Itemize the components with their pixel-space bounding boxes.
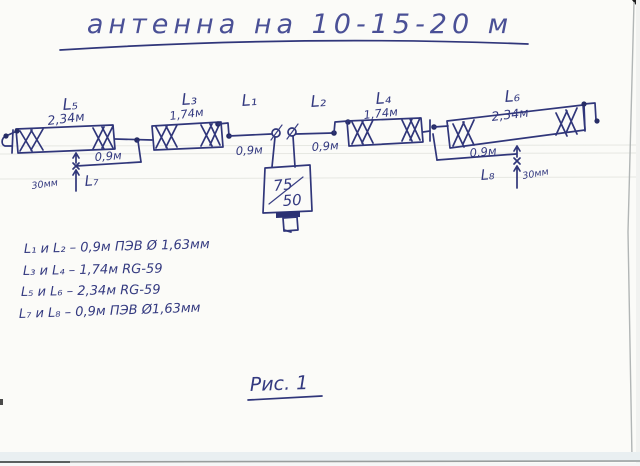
legend-item-3: L₅ и L₆ – 2,34м RG-59 [21,283,161,300]
wire-L2-label: L₂ [310,91,327,111]
element-L3-length: 1,74м [169,105,205,123]
scanned-page: антенна на 10-15-20 м L₅ 2,34м 30мм 0,9м… [0,0,640,466]
antenna-diagram: антенна на 10-15-20 м L₅ 2,34м 30мм 0,9м… [0,0,640,466]
wire-L2-length: 0,9м [311,138,339,154]
element-L6-label: L₆ [504,86,521,106]
stub-L8-label: L₈ [480,167,495,184]
element-L6-length: 2,34м [491,105,530,124]
legend-item-2: L₃ и L₄ – 1,74м RG-59 [23,262,163,279]
stub-L7-offset: 30мм [31,177,59,192]
caption-underline [248,396,322,400]
page-title: антенна на 10-15-20 м [87,9,513,40]
right-end-insulator [581,101,599,131]
stub-L7-length: 0,9м [94,148,122,164]
stub-L8-offset: 30мм [522,167,550,182]
transformer-bottom-value: 50 [282,191,302,210]
element-L4 [347,118,423,146]
title-underline [60,41,528,50]
stub-L7-label: L₇ [84,173,99,190]
legend: L₁ и L₂ – 0,9м ПЭВ Ø 1,63мм L₃ и L₄ – 1,… [19,237,210,322]
wire-L1 [229,134,271,136]
legend-item-1: L₁ и L₂ – 0,9м ПЭВ Ø 1,63мм [24,237,210,257]
stub-L8-length: 0,9м [469,144,497,160]
figure-caption: Рис. 1 [249,372,308,396]
wire-L1-length: 0,9м [235,143,263,158]
legend-item-4: L₇ и L₈ – 0,9м ПЭВ Ø1,63мм [19,301,201,322]
wire-L2 [296,119,351,136]
junction-L4-L6 [423,120,448,160]
element-L5-length: 2,34м [47,109,86,128]
wire-L1-label: L₁ [241,90,258,110]
coax-connector-icon [276,211,300,232]
